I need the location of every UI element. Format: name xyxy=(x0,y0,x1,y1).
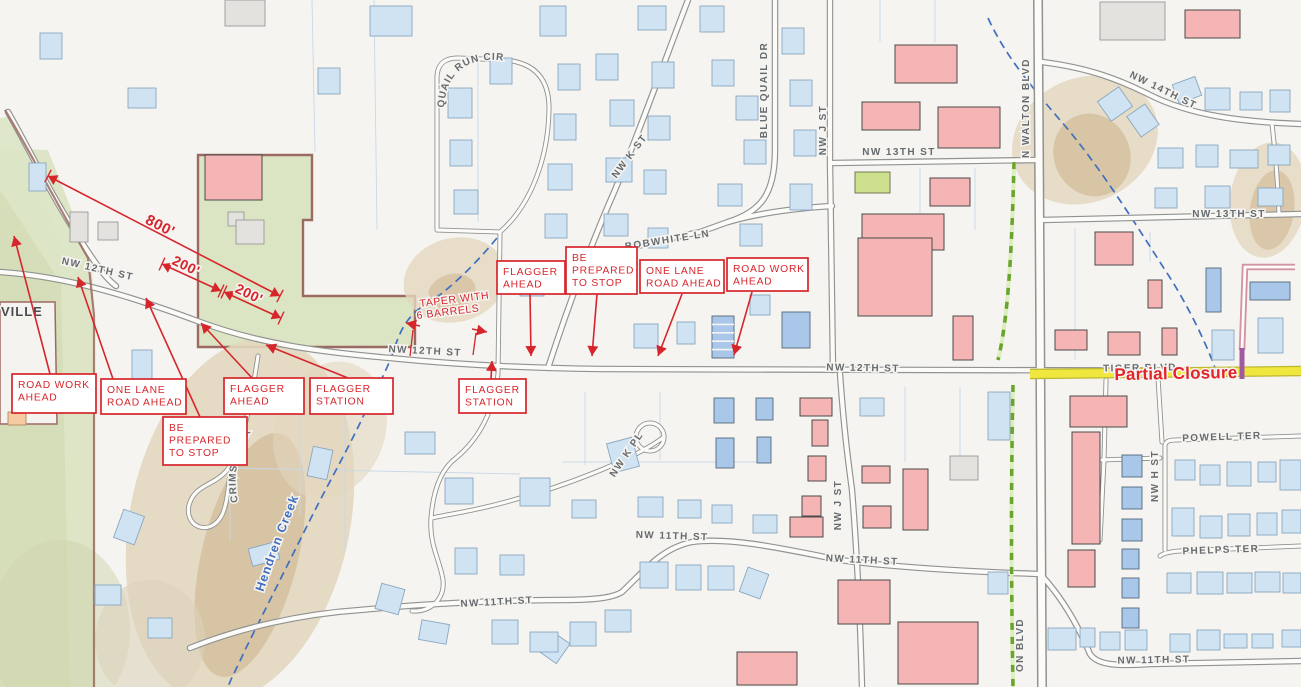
building-commercial xyxy=(1108,332,1140,355)
building-house xyxy=(708,566,734,590)
callout-text: TO STOP xyxy=(572,278,622,289)
callout-text: FLAGGER xyxy=(230,384,285,395)
building-house xyxy=(740,224,762,246)
building-house xyxy=(500,555,524,575)
building-house xyxy=(1155,188,1177,208)
building-house xyxy=(644,170,666,194)
building-apartment xyxy=(1122,549,1139,569)
building-commercial xyxy=(895,45,957,83)
partial-closure-labels: TIGER BLVDPartial Closure xyxy=(1103,362,1238,384)
building-house xyxy=(634,324,658,348)
building-house xyxy=(1227,462,1251,486)
callout-text: PREPARED xyxy=(169,436,231,447)
building-commercial xyxy=(808,456,826,481)
building-house xyxy=(450,140,472,166)
callout-flagger-ahead-w: FLAGGERAHEAD xyxy=(224,378,304,414)
building-commercial xyxy=(1070,396,1127,427)
building-apartment xyxy=(782,312,810,348)
building-house xyxy=(736,96,758,120)
building-house xyxy=(95,585,121,605)
callout-text: ROAD AHEAD xyxy=(107,398,183,409)
building-commercial xyxy=(205,155,262,200)
building-apartment xyxy=(757,437,771,463)
building-house xyxy=(712,505,732,523)
city-name-fragment: VILLE xyxy=(1,304,43,319)
building-house xyxy=(545,214,567,238)
building-gray xyxy=(1100,2,1165,40)
building-house xyxy=(1240,92,1262,110)
building-house xyxy=(29,163,46,191)
building-house xyxy=(1197,572,1223,594)
building-house xyxy=(1258,462,1276,482)
callout-one-lane-road-ahead-w: ONE LANEROAD AHEAD xyxy=(101,379,186,414)
building-house xyxy=(790,184,812,210)
building-house xyxy=(640,562,668,588)
building-house xyxy=(1167,573,1191,593)
building-house xyxy=(1280,460,1301,490)
building-house xyxy=(988,392,1010,440)
building-house xyxy=(700,6,724,32)
building-commercial xyxy=(862,466,890,483)
building-house xyxy=(676,565,701,590)
callout-text: BE xyxy=(572,253,587,264)
building-commercial xyxy=(858,238,932,316)
building-house xyxy=(492,620,518,644)
building-house xyxy=(520,478,550,506)
building-house xyxy=(454,190,478,214)
building-gray xyxy=(98,222,118,240)
building-house xyxy=(652,62,674,88)
building-house xyxy=(1200,465,1220,485)
building-house xyxy=(1227,573,1252,593)
building-house xyxy=(1100,632,1120,650)
building-apartment xyxy=(756,398,773,420)
callout-text: STATION xyxy=(465,398,514,409)
building-house xyxy=(570,622,596,646)
callout-road-work-ahead-w: ROAD WORKAHEAD xyxy=(12,374,96,413)
building-commercial xyxy=(862,102,920,130)
street-label: NW J ST xyxy=(833,480,844,530)
building-house xyxy=(455,548,477,574)
building-house xyxy=(753,515,777,533)
building-house xyxy=(1282,510,1301,533)
building-house xyxy=(370,6,412,36)
building-gray xyxy=(236,220,264,244)
building-house xyxy=(596,54,618,80)
building-house xyxy=(558,64,580,90)
building-house xyxy=(604,214,628,236)
building-house xyxy=(445,478,473,504)
street-label: NW 13TH ST xyxy=(862,147,935,158)
building-commercial xyxy=(903,469,928,530)
building-commercial xyxy=(1055,330,1087,350)
building-house xyxy=(744,140,766,164)
building-green xyxy=(855,172,890,193)
building-apartment xyxy=(1250,282,1290,300)
building-house xyxy=(677,322,695,344)
building-apartment xyxy=(1122,608,1139,628)
callout-text: FLAGGER xyxy=(503,267,558,278)
building-apartment xyxy=(1206,268,1221,312)
callout-text: AHEAD xyxy=(230,397,269,408)
building-house xyxy=(1170,634,1190,652)
building-house xyxy=(638,497,663,517)
map-viewport: NW 12TH STNW 12TH STNW 12TH STNW K STBLU… xyxy=(0,0,1301,687)
callout-text: TO STOP xyxy=(169,448,219,459)
callout-flagger-station-e: FLAGGERSTATION xyxy=(459,379,526,413)
building-apartment xyxy=(1122,455,1142,477)
building-house xyxy=(1080,628,1095,647)
callout-text: ONE LANE xyxy=(107,385,165,396)
building-house xyxy=(1175,460,1195,480)
building-gray xyxy=(950,456,978,480)
partial-closure-text: Partial Closure xyxy=(1114,363,1237,384)
building-commercial xyxy=(1068,550,1095,587)
building-house xyxy=(448,88,472,118)
building-house xyxy=(1048,628,1076,650)
callout-text: ROAD AHEAD xyxy=(646,279,722,290)
building-gray xyxy=(70,212,88,242)
building-house xyxy=(794,130,816,156)
building-commercial xyxy=(790,517,823,537)
building-house xyxy=(610,100,634,126)
building-house xyxy=(1258,318,1283,353)
building-house xyxy=(750,295,770,315)
street-label: NW 13TH ST xyxy=(1192,209,1265,220)
building-house xyxy=(1205,186,1230,208)
callout-text: ONE LANE xyxy=(646,266,704,277)
building-house xyxy=(1258,188,1283,206)
street-label: N WALTON BLVD xyxy=(1021,58,1032,158)
callout-text: BE xyxy=(169,423,184,434)
building-house xyxy=(1172,508,1194,536)
building-house xyxy=(148,618,172,638)
building-commercial xyxy=(1072,432,1100,544)
callout-text: FLAGGER xyxy=(316,384,371,395)
callout-text: AHEAD xyxy=(503,280,542,291)
street-label: ON BLVD xyxy=(1015,618,1026,672)
building-apartment xyxy=(716,438,734,468)
building-house xyxy=(405,432,435,454)
building-house xyxy=(40,33,62,59)
road xyxy=(1038,0,1042,687)
callout-flagger-station-w: FLAGGERSTATION xyxy=(310,378,393,414)
building-house xyxy=(572,500,596,518)
street-label: NW 11TH ST xyxy=(1117,654,1190,666)
building-house xyxy=(718,184,742,206)
building-house xyxy=(554,114,576,140)
building-house xyxy=(548,164,572,190)
road xyxy=(498,232,500,372)
building-commercial xyxy=(1162,328,1177,355)
building-house xyxy=(530,632,558,652)
building-house xyxy=(1252,634,1273,648)
building-house xyxy=(860,398,884,416)
building-commercial xyxy=(1185,10,1240,38)
callout-text: AHEAD xyxy=(18,393,57,404)
building-commercial xyxy=(898,622,978,684)
callout-text: ROAD WORK xyxy=(733,264,805,275)
building-house xyxy=(988,572,1008,594)
callout-road-work-ahead-e: ROAD WORKAHEAD xyxy=(727,258,808,291)
street-label: NW J ST xyxy=(818,105,829,155)
callout-text: STATION xyxy=(316,397,365,408)
callout-flagger-ahead-e: FLAGGERAHEAD xyxy=(497,261,565,294)
building-commercial xyxy=(812,420,828,446)
building-house xyxy=(418,620,449,645)
map-canvas[interactable]: NW 12TH STNW 12TH STNW 12TH STNW K STBLU… xyxy=(0,0,1301,687)
callout-be-prepared-to-stop-w: BEPREPAREDTO STOP xyxy=(163,417,247,465)
building-house xyxy=(1212,330,1234,360)
building-house xyxy=(1158,148,1183,168)
building-apartment xyxy=(1122,578,1139,598)
callout-one-lane-road-ahead-e: ONE LANEROAD AHEAD xyxy=(640,260,724,293)
building-house xyxy=(1230,150,1258,168)
building-house xyxy=(1283,573,1301,593)
building-house xyxy=(638,6,666,30)
building-apartment xyxy=(1122,519,1142,541)
building-commercial xyxy=(953,316,973,360)
building-house xyxy=(790,80,812,106)
building-house xyxy=(1224,634,1247,648)
building-house xyxy=(1257,513,1277,535)
building-commercial xyxy=(800,398,832,416)
building-house xyxy=(648,116,670,140)
building-house xyxy=(1205,88,1230,110)
building-orange xyxy=(8,412,26,425)
building-house xyxy=(605,610,631,632)
callout-text: AHEAD xyxy=(733,277,772,288)
building-commercial xyxy=(863,506,891,528)
street-label: NW H ST xyxy=(1150,450,1161,502)
building-apartment xyxy=(714,398,734,423)
building-house xyxy=(1255,572,1280,592)
building-commercial xyxy=(802,496,821,516)
building-commercial xyxy=(1095,232,1133,265)
building-house xyxy=(712,60,734,86)
road xyxy=(833,160,1038,163)
building-house xyxy=(782,28,804,54)
building-striped xyxy=(712,316,734,358)
building-gray xyxy=(225,0,265,26)
building-house xyxy=(318,68,340,94)
building-house xyxy=(1197,630,1220,650)
street-label: NW 12TH ST xyxy=(826,362,900,374)
building-commercial xyxy=(838,580,890,624)
building-house xyxy=(1268,145,1290,165)
callout-text: PREPARED xyxy=(572,266,634,277)
building-house xyxy=(1228,514,1250,536)
building-house xyxy=(1125,630,1147,650)
building-house xyxy=(1200,516,1222,538)
building-commercial xyxy=(1148,280,1162,308)
building-commercial xyxy=(938,107,1000,148)
building-house xyxy=(1282,630,1301,647)
building-house xyxy=(1270,90,1290,112)
building-house xyxy=(1196,145,1218,167)
building-house xyxy=(128,88,156,108)
callout-text: ROAD WORK xyxy=(18,380,90,391)
callout-be-prepared-to-stop-e: BEPREPAREDTO STOP xyxy=(566,247,637,294)
building-house xyxy=(678,500,701,518)
street-label: BLUE QUAIL DR xyxy=(759,42,770,138)
building-commercial xyxy=(737,652,797,685)
building-house xyxy=(540,6,566,36)
callout-text: FLAGGER xyxy=(465,385,520,396)
building-apartment xyxy=(1122,487,1142,509)
building-commercial xyxy=(930,178,970,206)
